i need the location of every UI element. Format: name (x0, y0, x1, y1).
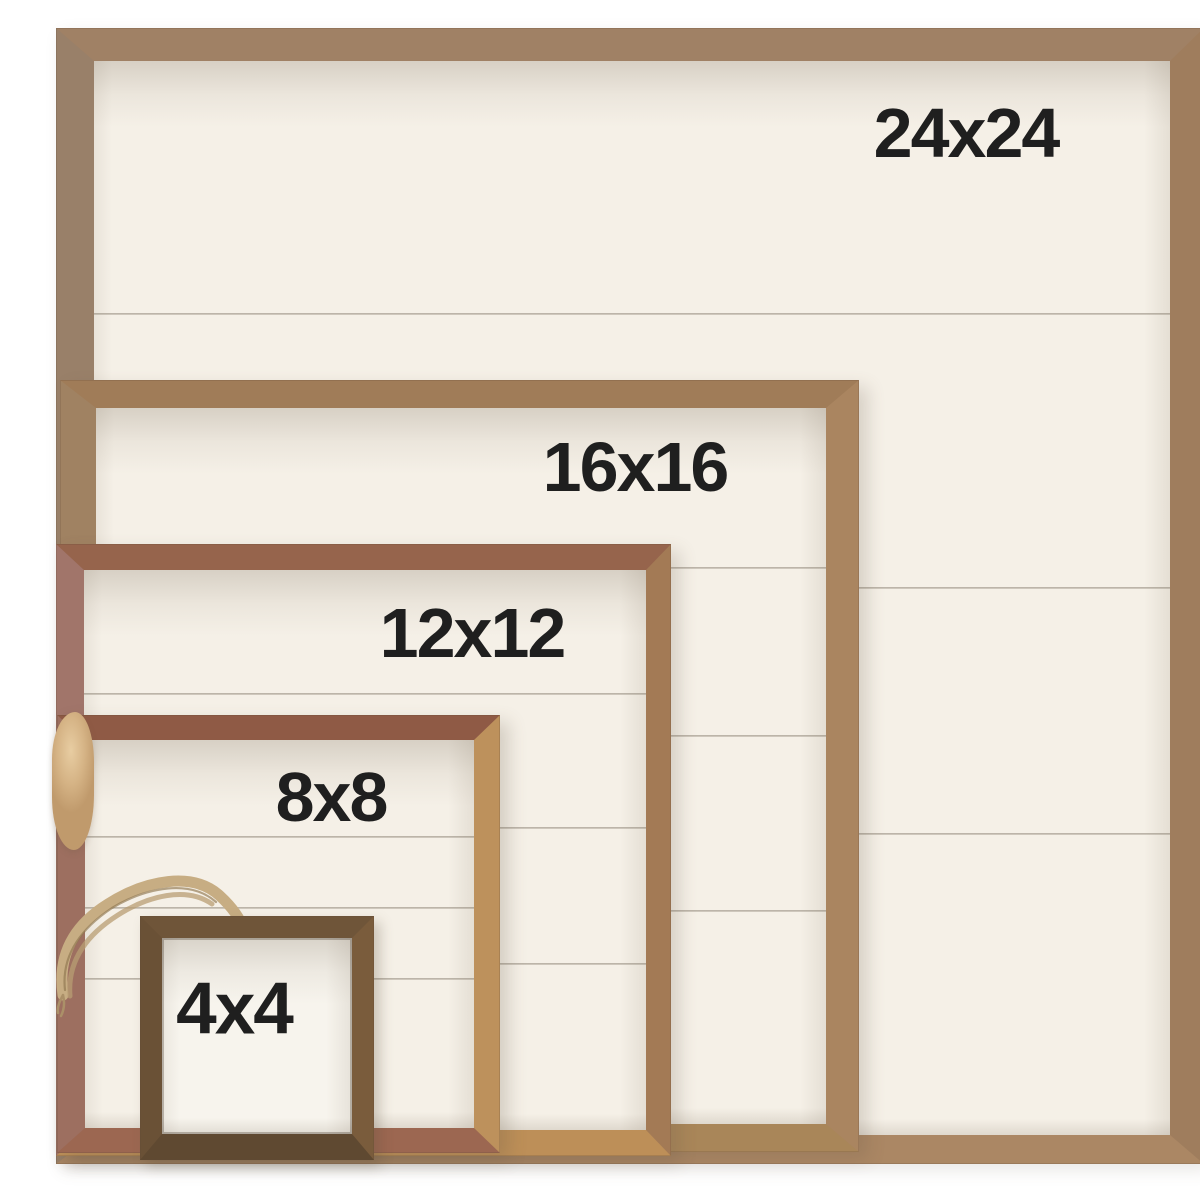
raw-wood-patch (52, 712, 94, 850)
shiplap-groove (85, 836, 474, 838)
size-label-16x16: 16x16 (543, 432, 728, 502)
size-label-4x4: 4x4 (176, 973, 292, 1046)
shiplap-groove (94, 313, 1170, 315)
shiplap-groove (85, 907, 474, 909)
size-label-12x12: 12x12 (380, 598, 565, 668)
size-label-8x8: 8x8 (276, 762, 387, 832)
product-photo: 24x24 16x16 12x12 8x8 4x4 (0, 0, 1200, 1200)
size-label-24x24: 24x24 (874, 98, 1059, 168)
shiplap-groove (84, 693, 646, 695)
